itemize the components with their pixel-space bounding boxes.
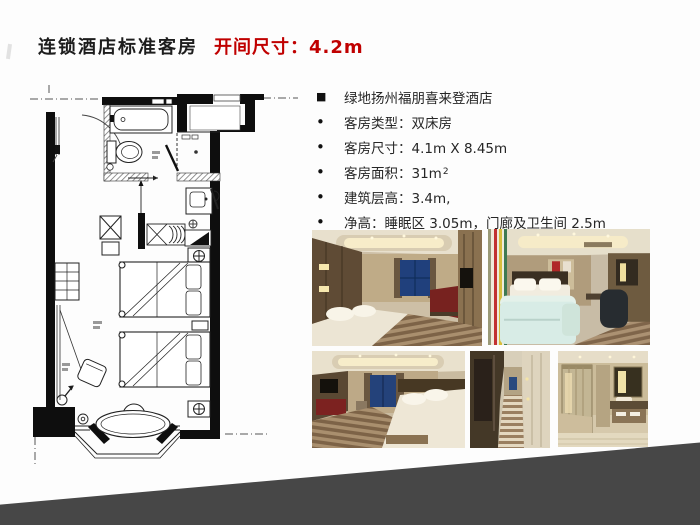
dot-bullet-icon: • bbox=[316, 213, 344, 231]
toilet bbox=[107, 141, 142, 170]
list-item: • 客房尺寸：4.1m X 8.45m bbox=[316, 134, 688, 159]
list-item: • 建筑层高：3.4m, bbox=[316, 184, 688, 209]
photo-bedroom-rendering-1 bbox=[312, 230, 482, 346]
square-bullet-icon: ■ bbox=[316, 90, 344, 103]
page-title: 连锁酒店标准客房 bbox=[38, 33, 198, 59]
tv-wall bbox=[138, 180, 145, 249]
guestroom-floor-plan bbox=[30, 85, 300, 465]
photo-corridor-rendering bbox=[470, 351, 550, 448]
desk-chair bbox=[77, 358, 108, 388]
bedroom-rendering-2 bbox=[488, 229, 650, 345]
photo-bathroom-rendering bbox=[558, 351, 648, 447]
bay-dimension-label: 开间尺寸：4.2m bbox=[214, 33, 364, 59]
corridor-rendering bbox=[470, 351, 550, 448]
edge-artifact bbox=[6, 44, 12, 59]
spec-text: 客房面积：31m bbox=[344, 162, 442, 182]
floor-lamp bbox=[57, 386, 73, 405]
photo-bedroom-rendering-2 bbox=[488, 229, 650, 345]
closet bbox=[55, 263, 79, 300]
spec-text: 客房类型：双床房 bbox=[344, 112, 452, 132]
photo-bedroom-rendering-3 bbox=[312, 351, 465, 448]
bathroom-rendering bbox=[558, 351, 648, 447]
dot-bullet-icon: • bbox=[316, 113, 344, 131]
list-item: ■ 绿地扬州福朋喜来登酒店 bbox=[316, 84, 688, 109]
flower-symbol bbox=[78, 414, 88, 424]
superscript-2: 2 bbox=[443, 167, 449, 177]
desk bbox=[57, 305, 82, 400]
room-spec-list: ■ 绿地扬州福朋喜来登酒店 • 客房类型：双床房 • 客房尺寸：4.1m X 8… bbox=[316, 84, 688, 234]
section-marker bbox=[185, 230, 211, 246]
floor-drain bbox=[189, 220, 197, 228]
dot-bullet-icon: • bbox=[316, 188, 344, 206]
list-item: • 客房面积：31m2 bbox=[316, 159, 688, 184]
spec-text: 客房尺寸：4.1m X 8.45m bbox=[344, 137, 507, 157]
bedroom-rendering-3 bbox=[312, 351, 465, 448]
oval-table bbox=[96, 411, 170, 438]
dot-bullet-icon: • bbox=[316, 138, 344, 156]
bedroom-rendering-1 bbox=[312, 230, 482, 346]
list-item: • 客房类型：双床房 bbox=[316, 109, 688, 134]
minibar-cabinet bbox=[100, 216, 121, 255]
luggage-rack bbox=[147, 224, 185, 245]
spec-text: 建筑层高：3.4m, bbox=[344, 187, 450, 207]
spec-text: 绿地扬州福朋喜来登酒店 bbox=[344, 87, 493, 107]
slide-canvas: 连锁酒店标准客房 开间尺寸：4.2m ■ 绿地扬州福朋喜来登酒店 • 客房类型：… bbox=[0, 0, 700, 525]
shower bbox=[152, 133, 198, 173]
slide-header: 连锁酒店标准客房 开间尺寸：4.2m bbox=[38, 33, 364, 59]
dot-bullet-icon: • bbox=[316, 163, 344, 181]
